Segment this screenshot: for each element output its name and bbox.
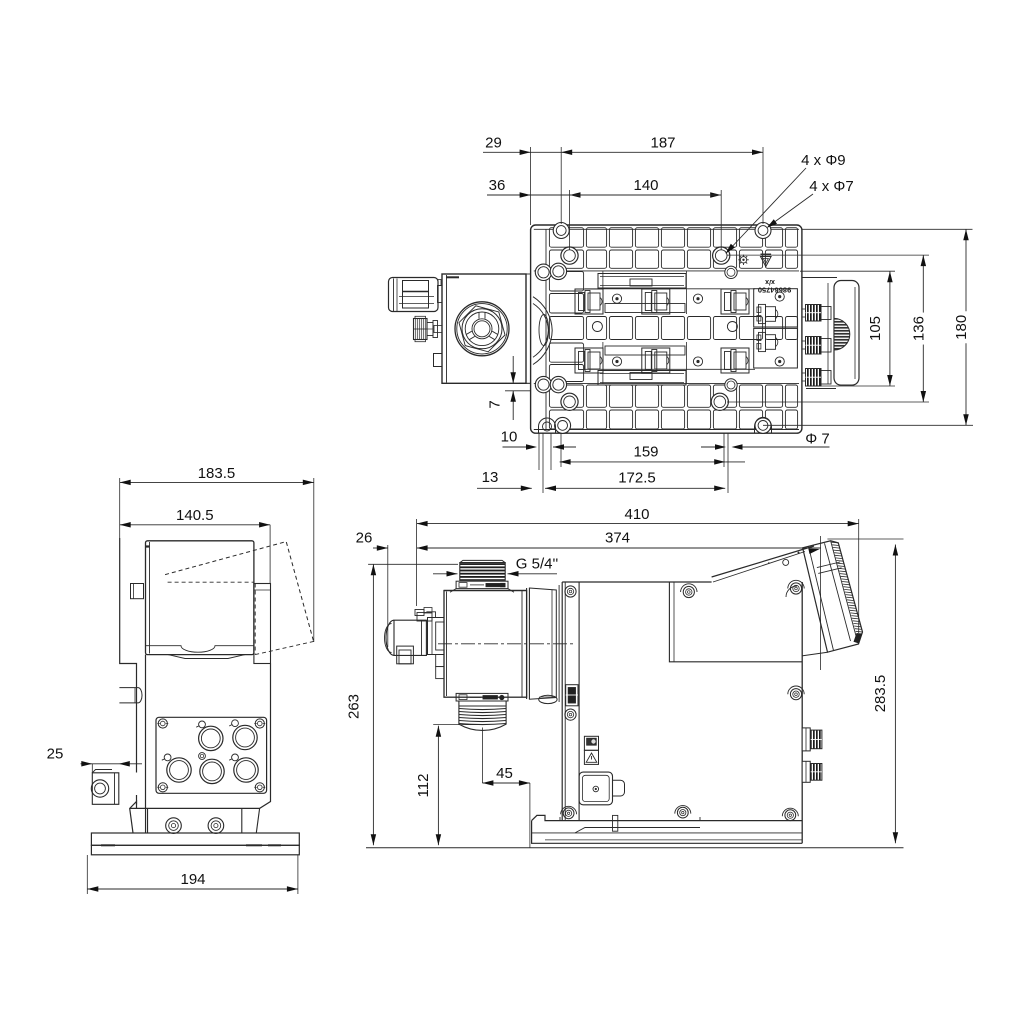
svg-text:159: 159 [633,444,658,461]
svg-text:25: 25 [47,746,64,763]
svg-text:4 x Φ9: 4 x Φ9 [801,152,846,169]
svg-text:105: 105 [867,316,884,341]
svg-text:Φ 7: Φ 7 [805,431,829,448]
svg-text:283.5: 283.5 [872,675,889,713]
svg-text:263: 263 [346,694,363,719]
svg-text:98664750: 98664750 [758,286,791,295]
svg-text:194: 194 [180,871,205,888]
svg-text:10: 10 [501,429,518,446]
svg-text:374: 374 [605,530,630,547]
svg-text:140: 140 [633,177,658,194]
svg-text:180: 180 [953,315,970,340]
svg-text:136: 136 [910,316,927,341]
svg-text:G 5/4'': G 5/4'' [516,556,559,573]
svg-text:172.5: 172.5 [618,470,656,487]
svg-text:29: 29 [485,135,502,152]
svg-text:45: 45 [496,765,513,782]
svg-text:112: 112 [415,774,432,798]
svg-text:410: 410 [624,506,649,523]
svg-text:7: 7 [487,400,504,408]
svg-text:x/x: x/x [765,278,775,285]
svg-text:36: 36 [489,177,506,194]
svg-text:26: 26 [356,530,373,547]
svg-text:183.5: 183.5 [198,465,236,482]
svg-text:4 x Φ7: 4 x Φ7 [809,178,854,195]
svg-text:13: 13 [482,469,499,486]
svg-text:187: 187 [650,135,675,152]
svg-text:140.5: 140.5 [176,507,214,524]
